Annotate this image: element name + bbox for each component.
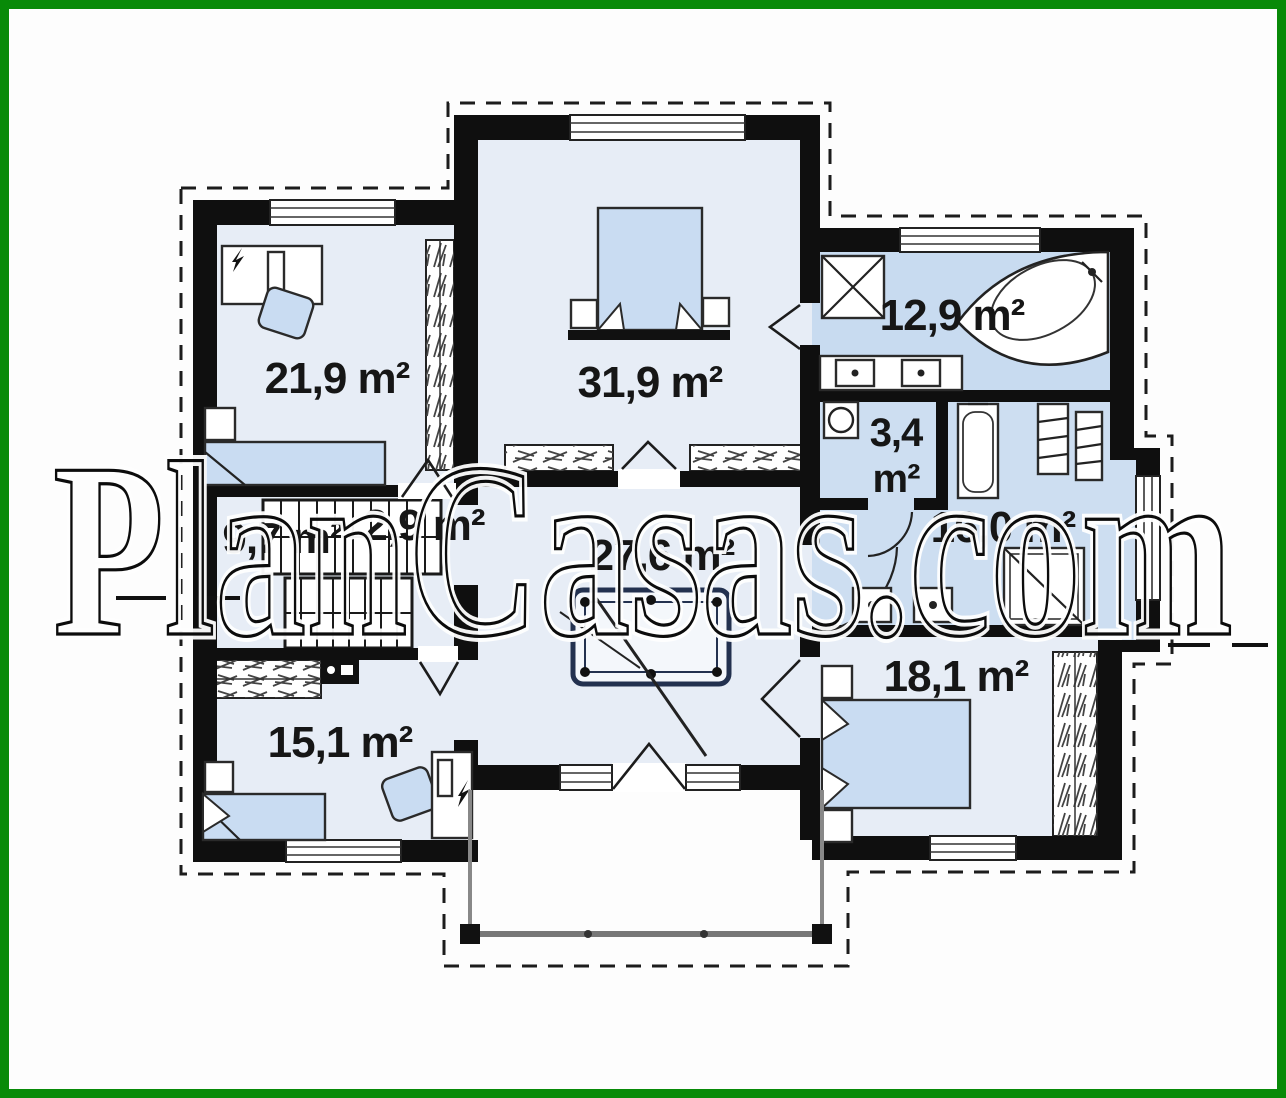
label-31-9: 31,9 m² [578, 358, 723, 407]
floor-plan-page: 21,9 m² 31,9 m² 12,9 m² 3,4 m² 16,0 m² 9… [0, 0, 1286, 1098]
watermark-text: PlanCasas.com [53, 412, 1233, 689]
window-27-6-right [686, 765, 740, 790]
label-12-9: 12,9 m² [880, 291, 1025, 340]
window-27-6-left [560, 765, 612, 790]
window-18-1 [930, 836, 1016, 860]
desk-15-1 [432, 752, 472, 838]
floor-plan-drawing: 21,9 m² 31,9 m² 12,9 m² 3,4 m² 16,0 m² 9… [9, 9, 1277, 1089]
window-15-1 [286, 840, 401, 862]
corner-shower-12-9 [822, 256, 884, 318]
window-31-9 [570, 115, 745, 140]
watermark: PlanCasas.com PlanCasas.com [53, 412, 1233, 689]
window-12-9 [900, 228, 1040, 252]
window-21-9 [270, 200, 395, 225]
vanity-sinks-12-9 [820, 356, 962, 390]
label-21-9: 21,9 m² [265, 354, 410, 403]
balcony [460, 790, 832, 944]
label-15-1: 15,1 m² [268, 718, 413, 767]
